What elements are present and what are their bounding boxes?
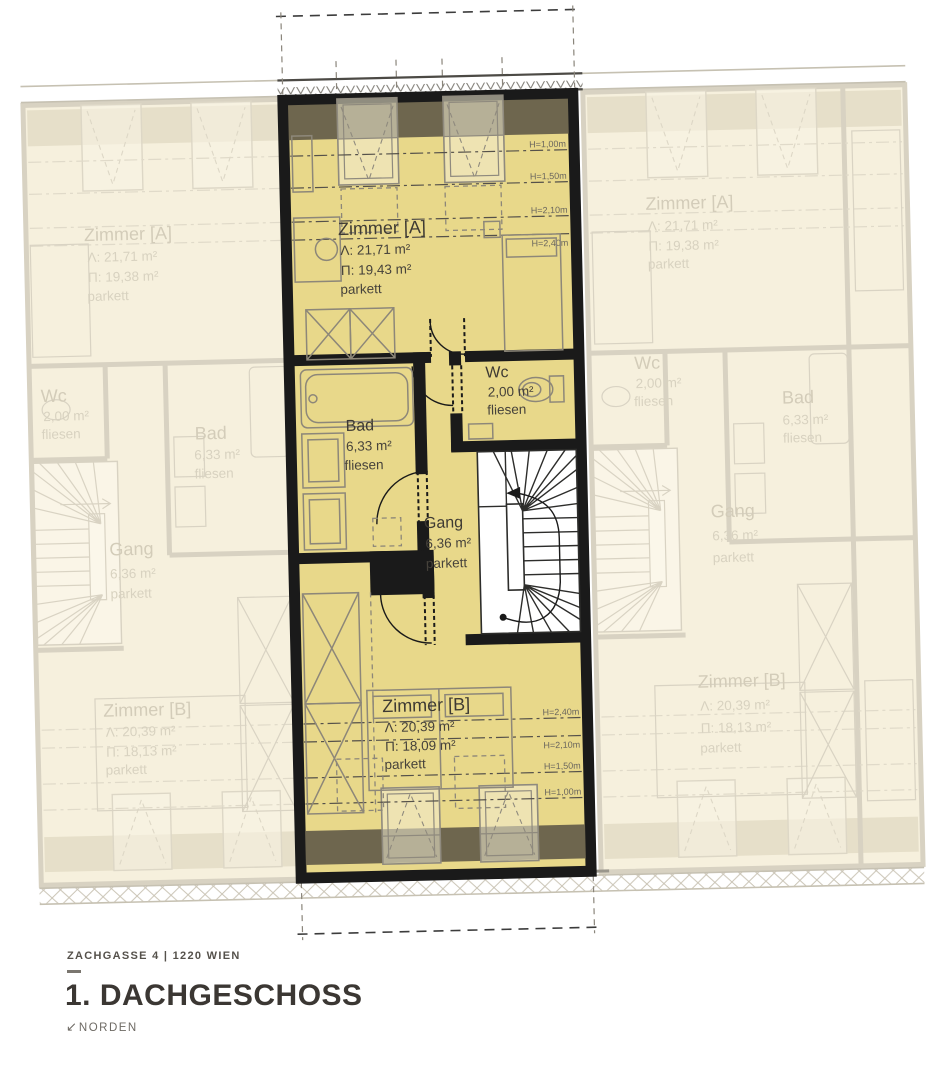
- right-wc-name: Wc: [634, 353, 660, 374]
- plan-drawing: Zimmer [A] Λ: 21,71 m² Π: 19,38 m² parke…: [19, 0, 926, 946]
- gang-floor: parkett: [426, 555, 468, 571]
- right-staircase: [593, 448, 681, 632]
- left-zimmer-a-name: Zimmer [A]: [84, 223, 172, 245]
- height-label: H=1,00m: [529, 139, 566, 150]
- north-arrow-icon: ↙: [66, 1019, 77, 1034]
- right-wc-area: 2,00 m²: [635, 375, 682, 391]
- left-zimmer-a-area-p: Π: 19,38 m²: [88, 268, 159, 285]
- height-label: H=1,00m: [544, 787, 581, 798]
- right-gang-floor: parkett: [713, 549, 755, 565]
- right-bad-name: Bad: [782, 387, 814, 408]
- left-gang-floor: parkett: [110, 586, 152, 602]
- left-bad-name: Bad: [194, 423, 226, 444]
- bad-name: Bad: [345, 417, 374, 435]
- left-wc-floor: fliesen: [42, 426, 81, 442]
- left-staircase: [33, 461, 121, 645]
- right-bad-floor: fliesen: [783, 430, 822, 446]
- gang-area: 6,36 m²: [425, 535, 472, 551]
- right-zimmer-a-area-p: Π: 19,38 m²: [648, 237, 719, 254]
- right-zimmer-a-area-a: Λ: 21,71 m²: [648, 217, 719, 234]
- left-wc-area: 2,00 m²: [43, 408, 90, 424]
- staircase: [477, 450, 580, 634]
- right-bad-area: 6,33 m²: [782, 412, 829, 428]
- wc-name: Wc: [485, 364, 509, 382]
- right-zimmer-b-area-p: Π: 18,13 m²: [701, 719, 772, 736]
- unit-right-faded: Zimmer [A] Λ: 21,71 m² Π: 19,38 m² parke…: [583, 85, 923, 872]
- left-zimmer-b-floor: parkett: [105, 762, 147, 778]
- floor-plan-svg: Zimmer [A] Λ: 21,71 m² Π: 19,38 m² parke…: [0, 0, 945, 1080]
- left-zimmer-b-name: Zimmer [B]: [103, 699, 191, 721]
- height-label: H=2,40m: [531, 238, 568, 249]
- dormer-window-bottom-right: [479, 785, 539, 862]
- project-address: ZACHGASSE 4 | 1220 WIEN: [67, 950, 241, 962]
- north-label: NORDEN: [79, 1022, 138, 1034]
- roof-band-top: [288, 99, 569, 141]
- left-bad-area: 6,33 m²: [194, 446, 241, 462]
- dormer-window-bottom-left: [381, 787, 441, 864]
- wc-area: 2,00 m²: [488, 384, 535, 400]
- north-indicator: ↙NORDEN: [66, 1019, 138, 1035]
- right-zimmer-a-name: Zimmer [A]: [645, 192, 733, 214]
- height-label: H=1,50m: [530, 171, 567, 182]
- right-zimmer-a-floor: parkett: [648, 256, 690, 272]
- zimmer-a-area-p: Π: 19,43 m²: [341, 261, 412, 278]
- right-gang-name: Gang: [710, 500, 755, 521]
- right-roof-band-top: [587, 90, 902, 133]
- left-zimmer-a-floor: parkett: [87, 288, 129, 304]
- roof-band-bottom: [305, 824, 586, 865]
- left-gang-area: 6,36 m²: [110, 565, 157, 581]
- bad-area: 6,33 m²: [346, 438, 393, 454]
- unit-left-faded: Zimmer [A] Λ: 21,71 m² Π: 19,38 m² parke…: [23, 99, 301, 885]
- right-wc-floor: fliesen: [634, 393, 673, 409]
- dormer-window-top-right: [443, 95, 505, 182]
- zimmer-b-name: Zimmer [B]: [382, 694, 470, 716]
- wc-floor: fliesen: [487, 402, 526, 418]
- left-wc-name: Wc: [41, 386, 67, 407]
- left-zimmer-a-area-a: Λ: 21,71 m²: [87, 248, 158, 265]
- right-gang-area: 6,36 m²: [712, 527, 759, 543]
- left-bad-floor: fliesen: [194, 466, 233, 482]
- right-zimmer-b-floor: parkett: [700, 740, 742, 756]
- page-title: 1. DACHGESCHOSS: [65, 979, 363, 1013]
- zimmer-a-floor: parkett: [340, 281, 382, 297]
- zimmer-a-area-a: Λ: 21,71 m²: [340, 241, 411, 258]
- left-zimmer-b-area-a: Λ: 20,39 m²: [106, 723, 177, 740]
- right-roof-band-bottom: [604, 817, 919, 859]
- bad-floor: fliesen: [344, 457, 383, 473]
- zimmer-a-name: Zimmer [A]: [338, 217, 426, 239]
- zimmer-b-area-a: Λ: 20,39 m²: [385, 718, 456, 735]
- height-label: H=2,10m: [543, 740, 580, 751]
- dormer-window-top-left: [337, 98, 399, 185]
- zimmer-b-area-p: Π: 18,09 m²: [385, 737, 456, 754]
- unit-central: H=1,00m H=1,50m H=2,10m H=2,40m H=2,40m …: [283, 94, 591, 879]
- right-zimmer-b-name: Zimmer [B]: [697, 670, 785, 692]
- gang-name: Gang: [424, 514, 464, 532]
- floor-plan-page: Zimmer [A] Λ: 21,71 m² Π: 19,38 m² parke…: [0, 0, 945, 1080]
- height-label: H=1,50m: [544, 761, 581, 772]
- address-divider: [67, 970, 81, 973]
- height-label: H=2,10m: [531, 205, 568, 216]
- zimmer-b-floor: parkett: [384, 756, 426, 772]
- right-zimmer-b-area-a: Λ: 20,39 m²: [700, 697, 771, 714]
- height-label: H=2,40m: [542, 707, 579, 718]
- left-gang-name: Gang: [109, 539, 154, 560]
- left-zimmer-b-area-p: Π: 18,13 m²: [106, 743, 177, 760]
